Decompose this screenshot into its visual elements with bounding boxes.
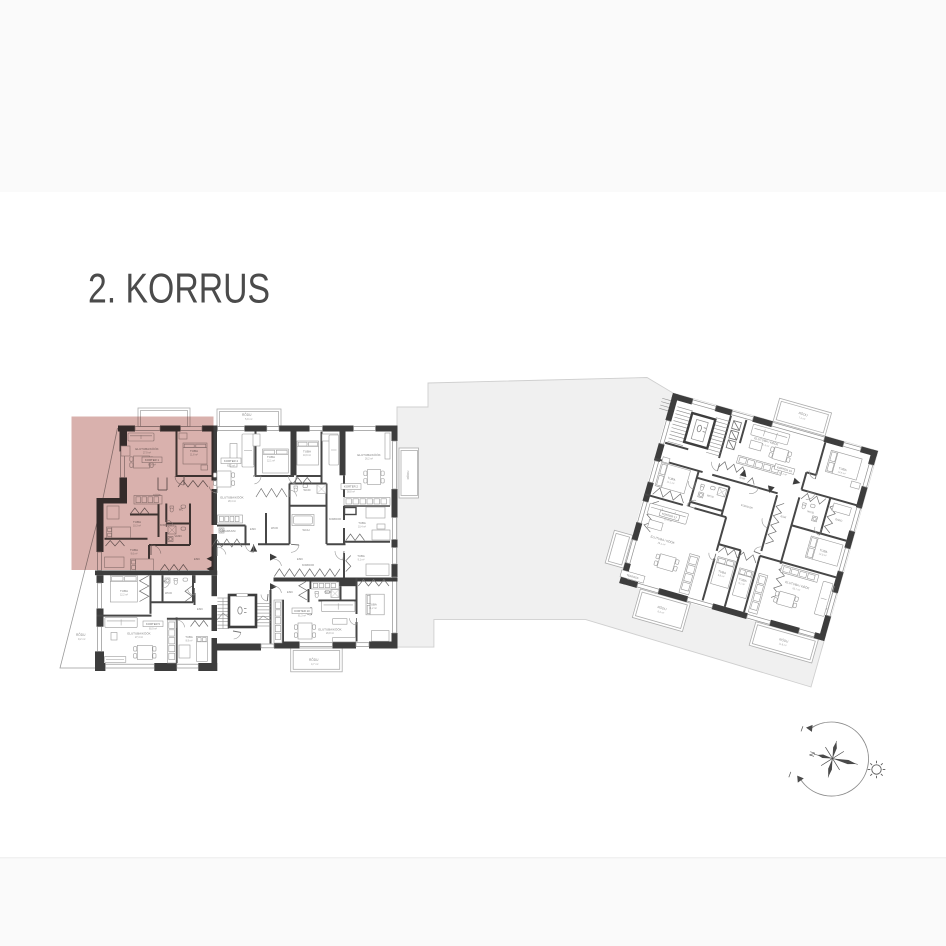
svg-text:TUBA: TUBA	[267, 455, 275, 459]
svg-text:58,8 m²: 58,8 m²	[347, 490, 355, 493]
svg-text:62,2 m²: 62,2 m²	[227, 465, 235, 468]
svg-text:TUBA: TUBA	[303, 450, 311, 454]
svg-text:ESIK: ESIK	[297, 557, 303, 561]
svg-text:11,2 m²: 11,2 m²	[369, 607, 377, 610]
svg-text:ESIK: ESIK	[287, 590, 293, 594]
svg-text:RÕDU: RÕDU	[242, 412, 252, 417]
svg-text:10,9 m²: 10,9 m²	[303, 454, 311, 457]
svg-text:60,9 m²: 60,9 m²	[149, 628, 157, 631]
svg-text:TUBA: TUBA	[185, 635, 193, 639]
svg-text:PESURUUM: PESURUUM	[221, 529, 236, 533]
svg-text:ELUTUBA/KÖÖK: ELUTUBA/KÖÖK	[127, 632, 150, 636]
svg-text:TUBA: TUBA	[369, 603, 377, 607]
svg-text:9,1 m²: 9,1 m²	[358, 558, 365, 561]
svg-text:WC/D: WC/D	[304, 488, 311, 492]
svg-text:27,4 m²: 27,4 m²	[135, 636, 143, 639]
svg-text:ELUTUBA/KÖÖK: ELUTUBA/KÖÖK	[318, 628, 341, 632]
svg-text:10,4 m²: 10,4 m²	[358, 525, 366, 528]
svg-text:4,7 m²: 4,7 m²	[311, 662, 318, 666]
svg-text:TUBA: TUBA	[358, 521, 366, 525]
svg-text:ELUTUBA/KÖÖK: ELUTUBA/KÖÖK	[357, 453, 380, 457]
svg-text:12,2 m²: 12,2 m²	[120, 594, 128, 597]
svg-text:RÕDU: RÕDU	[405, 471, 410, 480]
svg-text:28,4 m²: 28,4 m²	[228, 500, 236, 503]
svg-text:8,9 m²: 8,9 m²	[186, 639, 193, 642]
svg-text:WC/D: WC/D	[271, 526, 278, 530]
svg-text:KORTER 4: KORTER 4	[224, 459, 238, 463]
svg-text:61,3 m²: 61,3 m²	[298, 615, 306, 618]
svg-text:WC/D: WC/D	[165, 591, 172, 595]
svg-text:WC/D: WC/D	[325, 590, 332, 594]
svg-text:26,2 m²: 26,2 m²	[365, 458, 373, 461]
svg-text:KORTER 5: KORTER 5	[146, 622, 160, 626]
svg-text:WC/H: WC/H	[303, 528, 310, 532]
svg-text:12,1 m²: 12,1 m²	[267, 460, 275, 463]
svg-text:TUBA: TUBA	[120, 589, 128, 593]
svg-text:9,2 m²: 9,2 m²	[78, 637, 85, 641]
svg-text:KORIDOR: KORIDOR	[329, 517, 341, 521]
svg-text:RÕDU: RÕDU	[309, 657, 319, 662]
svg-text:TUBA: TUBA	[357, 554, 365, 558]
svg-text:5,9 m²: 5,9 m²	[245, 417, 252, 421]
svg-text:ESIK: ESIK	[197, 607, 203, 611]
svg-text:KORTER 2: KORTER 2	[344, 485, 358, 489]
svg-text:2. KORRUS: 2. KORRUS	[88, 265, 270, 312]
svg-text:KORTER 10: KORTER 10	[294, 609, 310, 613]
svg-text:ESIK: ESIK	[250, 527, 256, 531]
svg-text:ELUTUBA/KÖÖK: ELUTUBA/KÖÖK	[220, 496, 243, 500]
svg-text:KORIDOR: KORIDOR	[302, 563, 314, 567]
svg-text:RÕDU: RÕDU	[76, 632, 86, 637]
svg-text:26,8 m²: 26,8 m²	[326, 632, 334, 635]
